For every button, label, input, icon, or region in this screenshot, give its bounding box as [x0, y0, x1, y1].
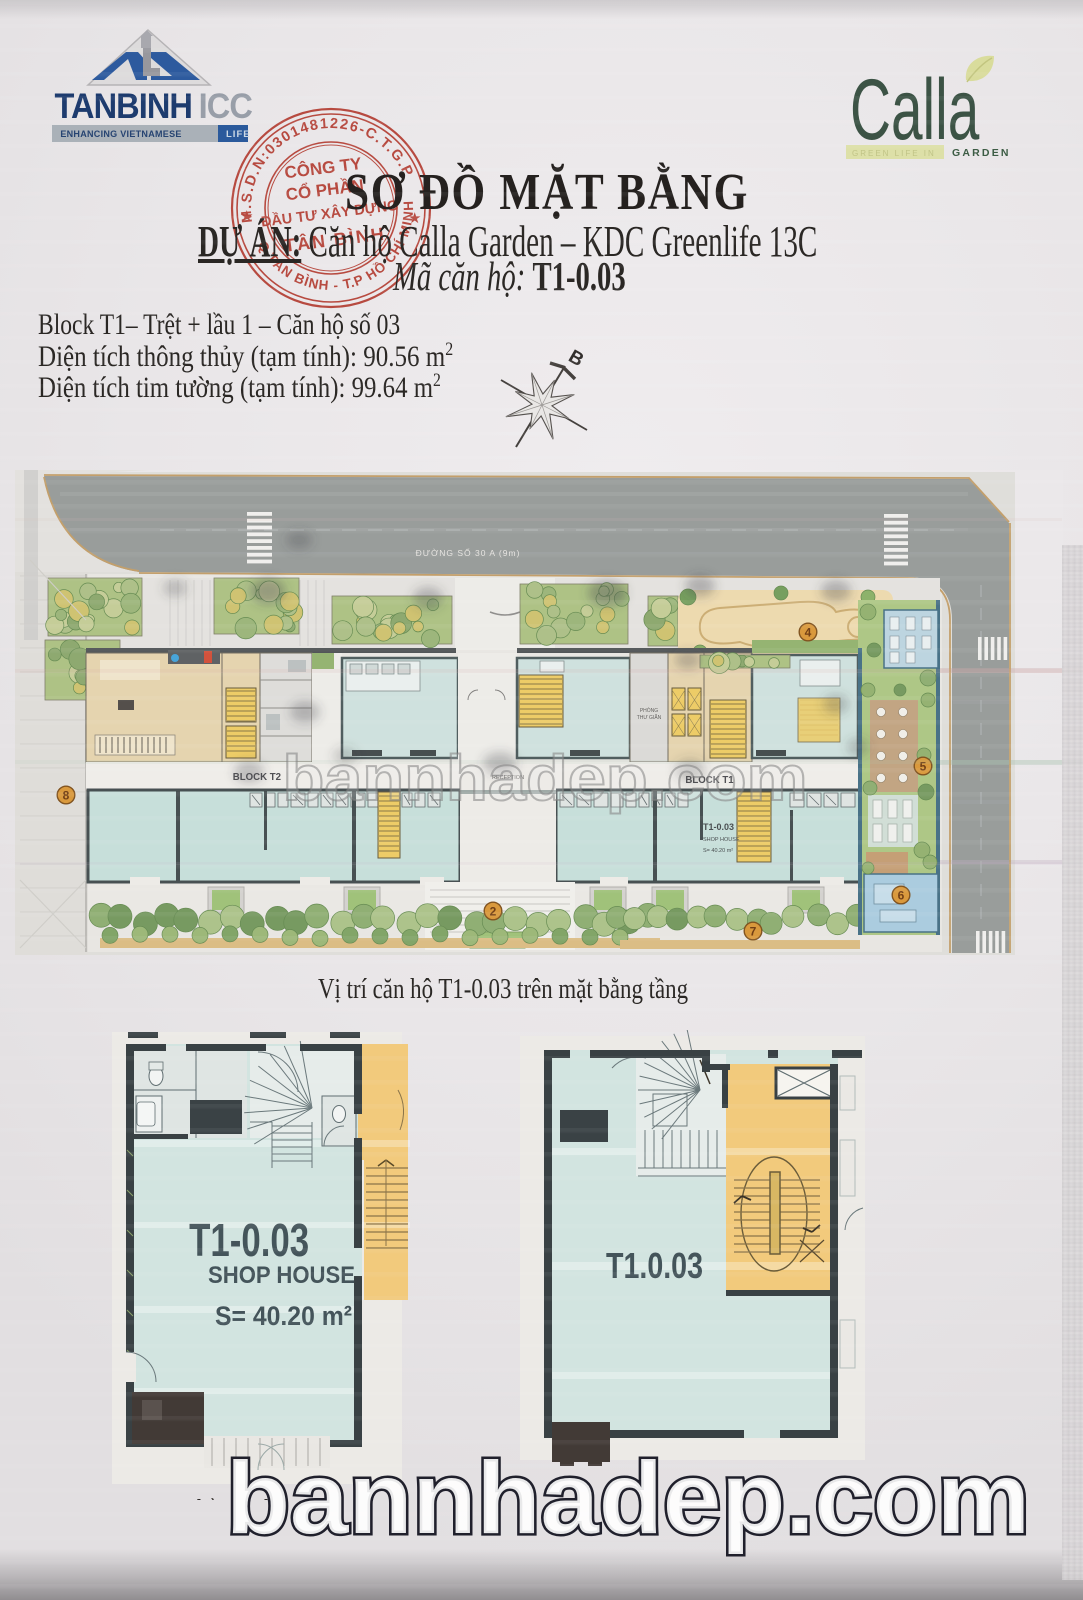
svg-text:T1-0.03: T1-0.03 — [189, 1214, 309, 1266]
svg-text:bannhadep.com: bannhadep.com — [226, 1441, 1030, 1555]
svg-text:SHOP HOUSE: SHOP HOUSE — [208, 1262, 355, 1289]
svg-text:T1.0.03: T1.0.03 — [606, 1245, 703, 1286]
svg-text:S= 40.20 m²: S= 40.20 m² — [215, 1301, 352, 1331]
svg-text:ENHANCING VIETNAMESE: ENHANCING VIETNAMESE — [60, 129, 181, 139]
svg-text:B: B — [565, 346, 587, 371]
svg-text:TANBINH: TANBINH — [55, 87, 192, 126]
svg-text:GREEN LIFE IN: GREEN LIFE IN — [852, 149, 936, 158]
svg-text:Calla: Calla — [850, 62, 980, 158]
svg-text:GARDEN: GARDEN — [952, 147, 1011, 159]
